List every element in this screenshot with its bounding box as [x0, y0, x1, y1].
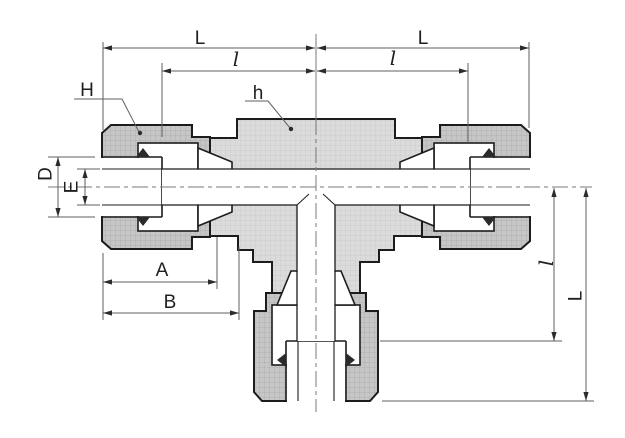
label-counterbore-dia: D: [36, 167, 57, 181]
arrowhead: [103, 45, 112, 50]
label-nut-length: A: [156, 260, 169, 281]
arrowhead: [230, 310, 239, 315]
arrowhead: [55, 208, 60, 217]
label-insert-left: l: [233, 47, 239, 71]
arrowhead: [162, 68, 171, 73]
arrowhead: [583, 392, 588, 401]
arrowhead: [459, 68, 468, 73]
arrowhead: [55, 157, 60, 166]
label-nut-ref: H: [80, 80, 94, 101]
arrowhead: [82, 196, 87, 205]
arrowhead: [551, 188, 556, 197]
label-to-body: B: [164, 292, 177, 313]
arrowhead: [317, 68, 326, 73]
tee-fitting-drawing: L L l l H h D E A B l L: [0, 0, 625, 438]
arrowhead: [208, 279, 217, 284]
arrowhead: [551, 332, 556, 341]
arrowhead: [82, 169, 87, 178]
arrowhead: [520, 45, 529, 50]
drawing-canvas: L L l l H h D E A B l L: [0, 0, 625, 438]
arrowhead: [306, 68, 315, 73]
label-overall-right: L: [418, 28, 429, 49]
leader-h-dot: [289, 127, 293, 131]
label-branch-insert: l: [534, 260, 558, 266]
label-bore-dia: E: [62, 181, 83, 194]
label-overall-left: L: [195, 28, 206, 49]
arrowhead: [103, 310, 112, 315]
leader-H-dot: [138, 131, 142, 135]
label-body-ref: h: [253, 83, 264, 104]
arrowhead: [583, 188, 588, 197]
arrowhead: [103, 279, 112, 284]
label-insert-right: l: [390, 46, 396, 70]
arrowhead: [306, 45, 315, 50]
arrowhead: [317, 45, 326, 50]
label-branch-overall: L: [566, 291, 587, 302]
